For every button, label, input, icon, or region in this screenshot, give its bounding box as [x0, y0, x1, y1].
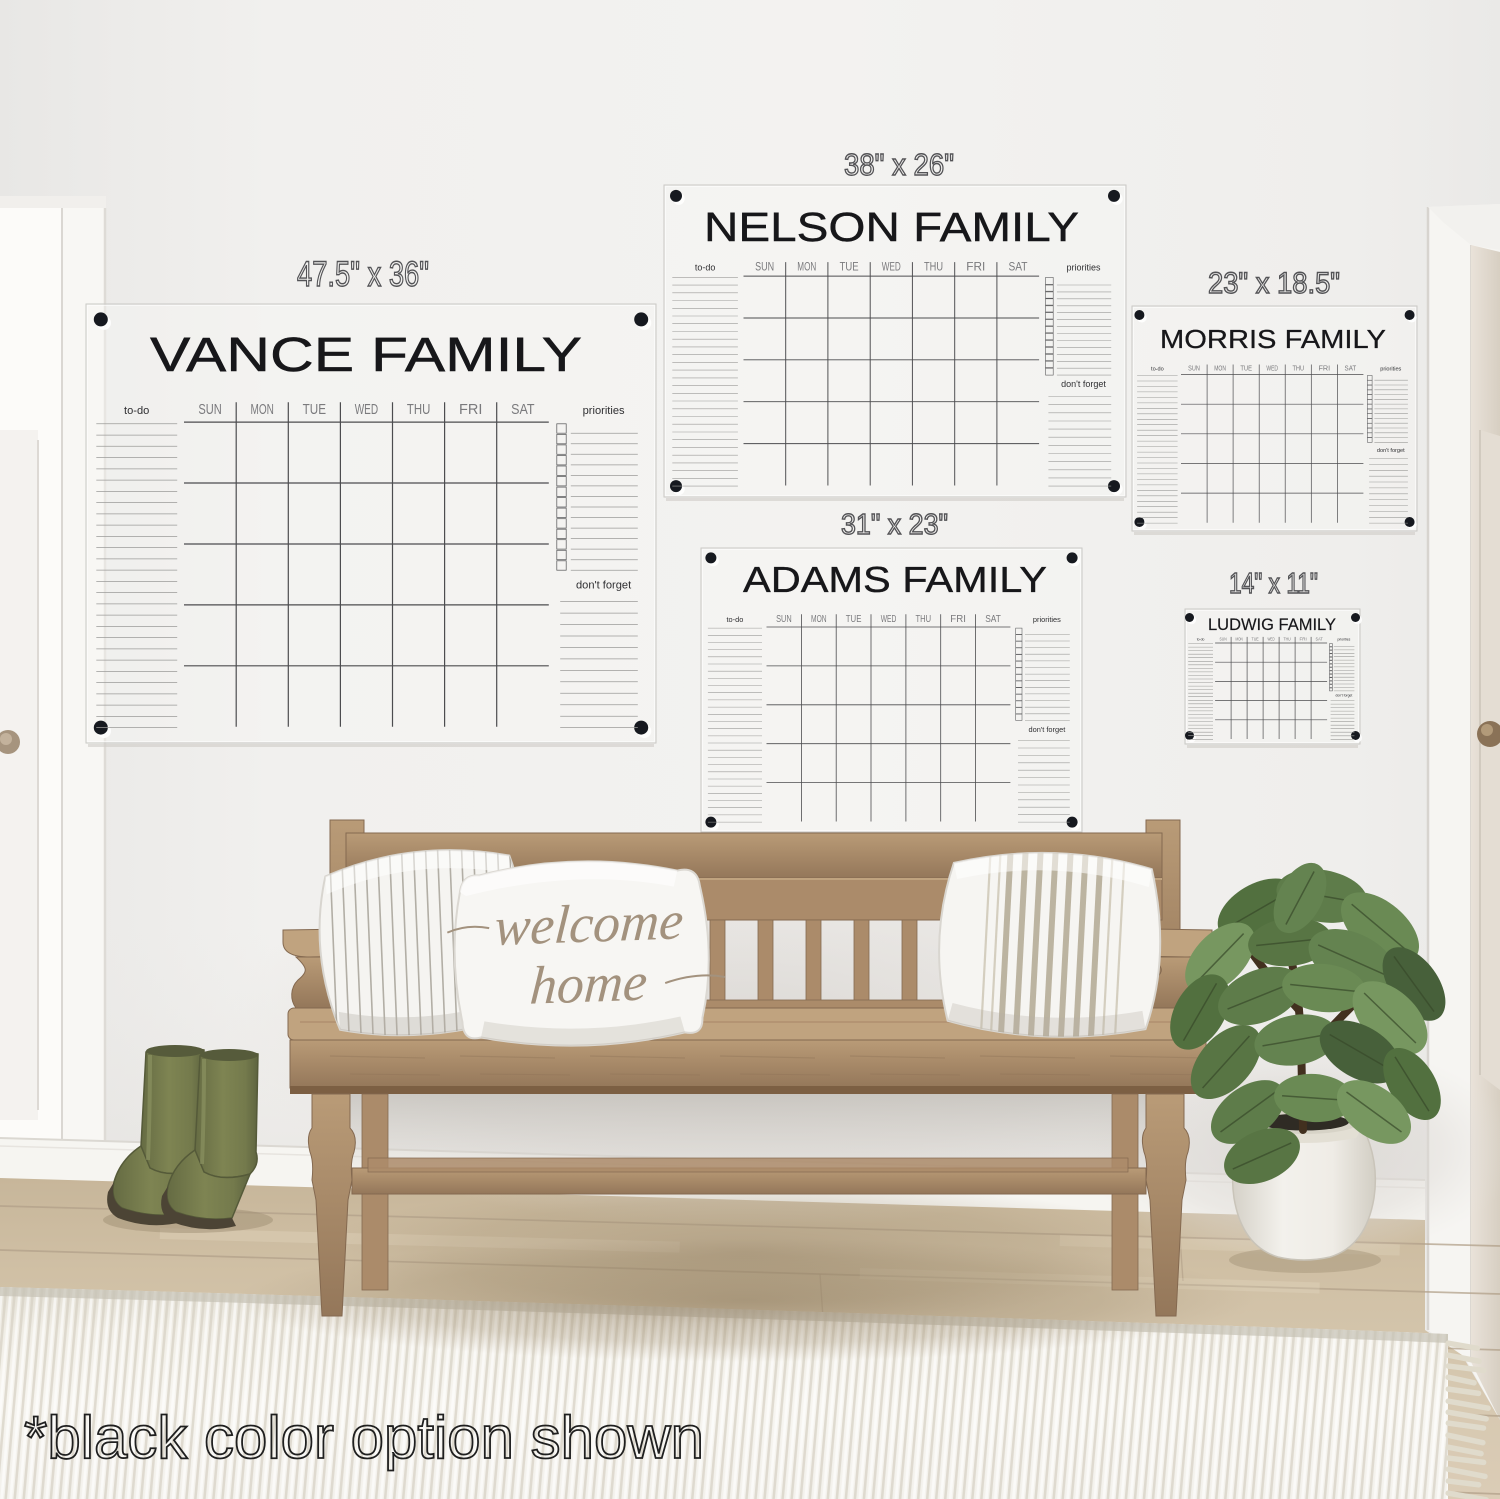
svg-text:TUE: TUE	[1240, 364, 1252, 373]
svg-text:SAT: SAT	[511, 401, 534, 418]
svg-text:SAT: SAT	[985, 614, 1001, 625]
svg-text:FRI: FRI	[950, 614, 966, 625]
svg-text:THU: THU	[916, 614, 932, 625]
svg-text:priorities: priorities	[1066, 263, 1101, 273]
svg-text:priorities: priorities	[583, 405, 625, 417]
svg-text:to-do: to-do	[1197, 638, 1205, 642]
svg-text:MON: MON	[797, 260, 816, 274]
svg-text:to-do: to-do	[1151, 367, 1164, 373]
svg-text:SUN: SUN	[755, 260, 774, 274]
svg-text:SUN: SUN	[776, 614, 792, 625]
svg-text:TUE: TUE	[846, 614, 862, 625]
svg-text:MON: MON	[1236, 637, 1243, 642]
svg-text:SUN: SUN	[198, 401, 221, 418]
svg-text:FRI: FRI	[966, 260, 985, 274]
svg-text:14" x 11": 14" x 11"	[1229, 568, 1318, 600]
svg-text:SAT: SAT	[1345, 364, 1357, 373]
svg-text:47.5" x 36": 47.5" x 36"	[297, 255, 429, 294]
svg-text:SUN: SUN	[1220, 637, 1227, 642]
svg-text:WED: WED	[355, 401, 378, 418]
svg-text:welcome: welcome	[493, 890, 686, 957]
svg-text:don't forget: don't forget	[1335, 694, 1352, 698]
svg-text:MON: MON	[811, 614, 827, 625]
svg-text:MORRIS FAMILY: MORRIS FAMILY	[1160, 324, 1386, 354]
svg-text:SUN: SUN	[1188, 364, 1200, 373]
svg-text:THU: THU	[1284, 637, 1291, 642]
svg-text:don't forget: don't forget	[576, 580, 631, 592]
svg-text:don't forget: don't forget	[1029, 725, 1066, 734]
svg-text:WED: WED	[1266, 364, 1278, 373]
svg-text:MON: MON	[251, 401, 274, 418]
svg-text:31" x 23": 31" x 23"	[841, 509, 948, 541]
svg-text:to-do: to-do	[726, 615, 743, 624]
svg-text:to-do: to-do	[124, 405, 149, 417]
svg-text:FRI: FRI	[1300, 637, 1307, 642]
svg-text:FRI: FRI	[1318, 364, 1330, 373]
svg-text:priorities: priorities	[1380, 367, 1401, 373]
svg-text:23" x 18.5": 23" x 18.5"	[1208, 267, 1340, 300]
svg-text:priorities: priorities	[1033, 615, 1061, 624]
svg-text:MON: MON	[1214, 364, 1226, 373]
svg-text:home: home	[528, 952, 649, 1016]
svg-text:WED: WED	[1268, 637, 1276, 642]
svg-text:SAT: SAT	[1316, 637, 1323, 642]
svg-text:priorities: priorities	[1337, 638, 1350, 642]
svg-text:NELSON FAMILY: NELSON FAMILY	[704, 204, 1079, 250]
svg-text:TUE: TUE	[1252, 637, 1259, 642]
svg-text:*black color option shown: *black color option shown	[24, 1404, 704, 1471]
svg-text:FRI: FRI	[459, 401, 482, 418]
svg-text:WED: WED	[882, 260, 901, 274]
svg-text:THU: THU	[407, 401, 430, 418]
svg-text:LUDWIG FAMILY: LUDWIG FAMILY	[1208, 615, 1336, 634]
svg-text:SAT: SAT	[1009, 260, 1028, 274]
svg-text:38" x 26": 38" x 26"	[844, 147, 954, 182]
svg-text:WED: WED	[881, 614, 897, 625]
svg-text:VANCE FAMILY: VANCE FAMILY	[150, 329, 582, 382]
svg-text:TUE: TUE	[303, 401, 326, 418]
svg-text:TUE: TUE	[840, 260, 859, 274]
svg-text:don't forget: don't forget	[1061, 379, 1106, 389]
svg-text:ADAMS FAMILY: ADAMS FAMILY	[743, 559, 1047, 600]
svg-text:THU: THU	[924, 260, 943, 274]
svg-text:don't forget: don't forget	[1377, 448, 1405, 454]
svg-text:THU: THU	[1292, 364, 1304, 373]
svg-text:to-do: to-do	[695, 263, 716, 273]
